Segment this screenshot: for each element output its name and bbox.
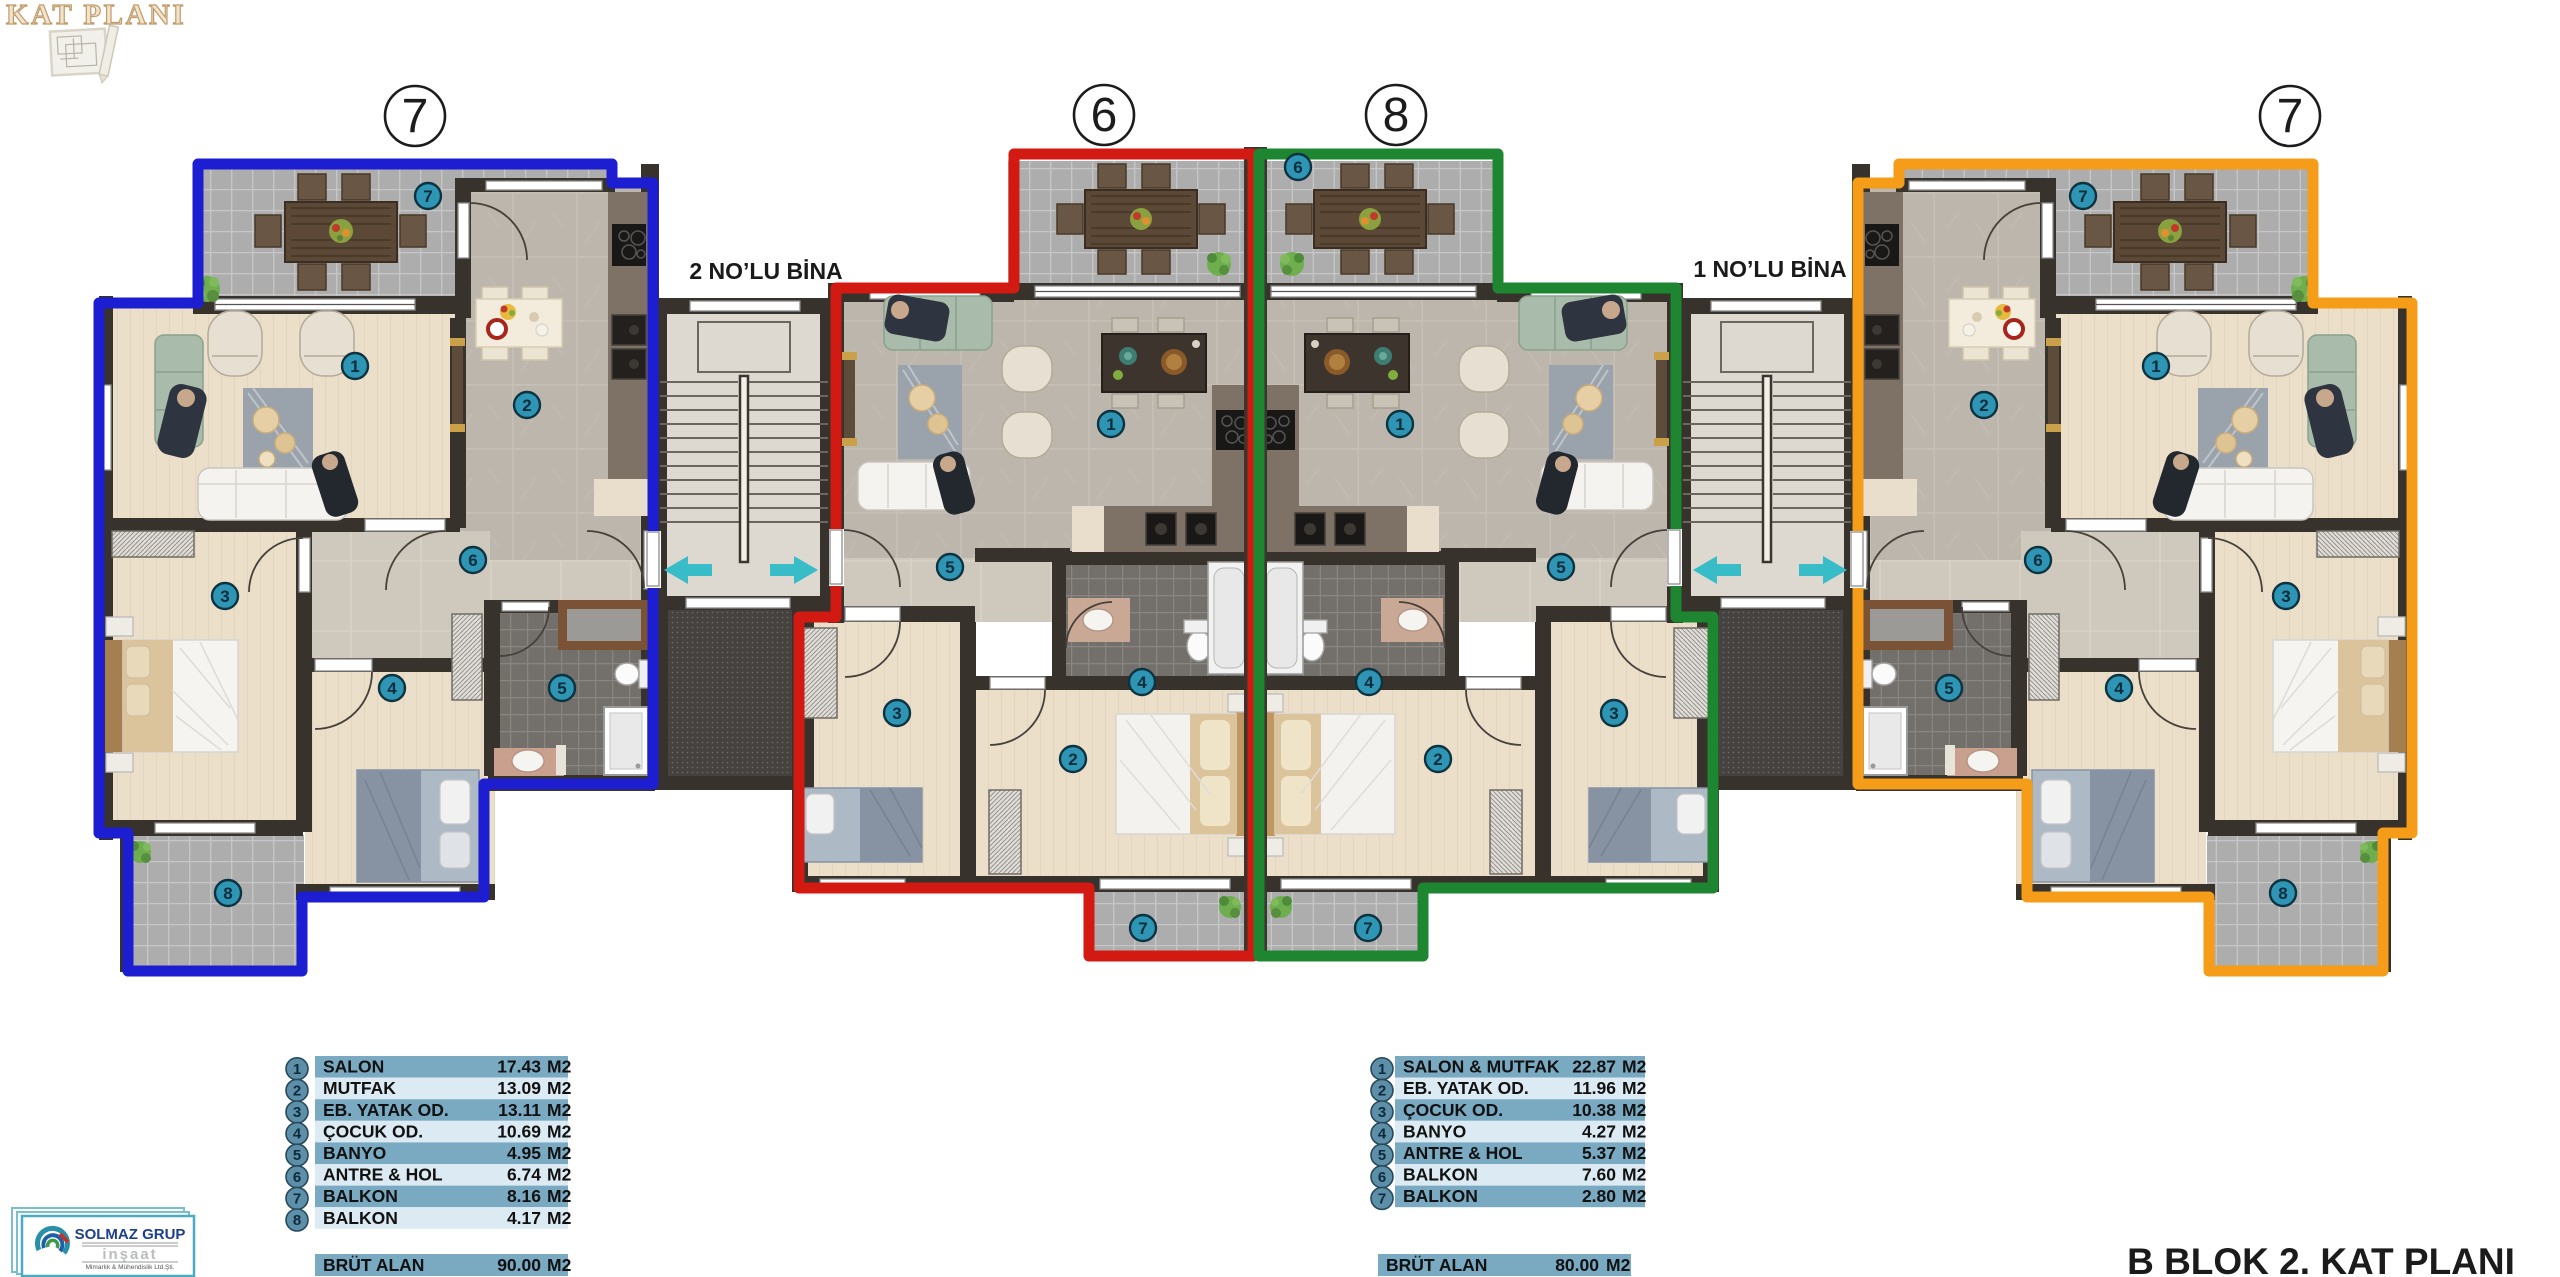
svg-text:7: 7 xyxy=(2277,90,2304,143)
svg-text:8: 8 xyxy=(1383,89,1410,142)
svg-text:5: 5 xyxy=(557,679,566,698)
svg-text:8.16: 8.16 xyxy=(507,1186,541,1206)
svg-text:3: 3 xyxy=(220,587,229,606)
svg-text:ÇOCUK OD.: ÇOCUK OD. xyxy=(323,1121,423,1141)
svg-text:inşaat: inşaat xyxy=(102,1246,157,1263)
svg-text:M2: M2 xyxy=(1622,1165,1647,1185)
svg-text:M2: M2 xyxy=(547,1057,572,1077)
svg-text:M2: M2 xyxy=(1622,1143,1647,1163)
svg-text:6: 6 xyxy=(468,551,477,570)
svg-text:BALKON: BALKON xyxy=(323,1208,398,1228)
svg-text:M2: M2 xyxy=(1622,1057,1647,1077)
svg-text:2: 2 xyxy=(1068,750,1077,769)
svg-text:M2: M2 xyxy=(1622,1121,1647,1141)
svg-text:M2: M2 xyxy=(547,1121,572,1141)
svg-text:Mimarlık & Mühendislik Ltd.Şti: Mimarlık & Mühendislik Ltd.Şti. xyxy=(86,1264,175,1271)
svg-text:ÇOCUK OD.: ÇOCUK OD. xyxy=(1403,1100,1503,1120)
svg-text:13.09: 13.09 xyxy=(497,1078,541,1098)
svg-text:5: 5 xyxy=(293,1147,301,1164)
svg-text:4: 4 xyxy=(1378,1126,1387,1143)
svg-text:7: 7 xyxy=(1378,1190,1386,1207)
svg-text:7: 7 xyxy=(2078,187,2087,206)
svg-text:BANYO: BANYO xyxy=(1403,1121,1466,1141)
svg-text:22.87: 22.87 xyxy=(1572,1057,1616,1077)
svg-text:1: 1 xyxy=(2151,357,2160,376)
svg-text:EB. YATAK OD.: EB. YATAK OD. xyxy=(323,1100,449,1120)
svg-text:M2: M2 xyxy=(547,1143,572,1163)
svg-text:6.74: 6.74 xyxy=(507,1165,541,1185)
svg-text:EB. YATAK OD.: EB. YATAK OD. xyxy=(1403,1078,1529,1098)
svg-text:B BLOK 2. KAT PLANI: B BLOK 2. KAT PLANI xyxy=(2127,1241,2515,1277)
svg-text:2 NO’LU BİNA: 2 NO’LU BİNA xyxy=(689,258,842,284)
svg-text:BRÜT ALAN: BRÜT ALAN xyxy=(1386,1255,1487,1275)
svg-text:6: 6 xyxy=(1293,158,1302,177)
svg-text:8: 8 xyxy=(2278,884,2287,903)
svg-text:M2: M2 xyxy=(547,1100,572,1120)
svg-text:4: 4 xyxy=(1137,673,1147,692)
svg-text:1: 1 xyxy=(350,357,359,376)
svg-text:ANTRE & HOL: ANTRE & HOL xyxy=(323,1165,443,1185)
svg-text:2: 2 xyxy=(522,396,531,415)
svg-text:1 NO’LU BİNA: 1 NO’LU BİNA xyxy=(1693,256,1846,282)
svg-text:1: 1 xyxy=(1395,415,1404,434)
svg-text:8: 8 xyxy=(293,1212,301,1229)
svg-text:10.69: 10.69 xyxy=(497,1121,541,1141)
svg-text:7: 7 xyxy=(1363,919,1372,938)
svg-text:SALON: SALON xyxy=(323,1057,384,1077)
svg-text:5: 5 xyxy=(945,558,954,577)
svg-text:17.43: 17.43 xyxy=(497,1057,541,1077)
svg-text:M2: M2 xyxy=(547,1078,572,1098)
svg-text:7: 7 xyxy=(402,90,429,143)
svg-text:1: 1 xyxy=(1378,1061,1386,1078)
svg-text:M2: M2 xyxy=(1606,1255,1631,1275)
svg-text:4.95: 4.95 xyxy=(507,1143,541,1163)
svg-text:6: 6 xyxy=(1091,89,1118,142)
svg-text:90.00: 90.00 xyxy=(497,1255,541,1275)
svg-text:7.60: 7.60 xyxy=(1582,1165,1616,1185)
svg-text:3: 3 xyxy=(892,704,901,723)
svg-text:4.27: 4.27 xyxy=(1582,1121,1616,1141)
svg-text:4: 4 xyxy=(1364,673,1374,692)
svg-text:BALKON: BALKON xyxy=(1403,1186,1478,1206)
svg-text:8: 8 xyxy=(223,884,232,903)
svg-text:6: 6 xyxy=(2033,551,2042,570)
svg-text:BRÜT ALAN: BRÜT ALAN xyxy=(323,1255,424,1275)
svg-text:7: 7 xyxy=(423,187,432,206)
svg-text:M2: M2 xyxy=(547,1165,572,1185)
svg-text:5: 5 xyxy=(1556,558,1565,577)
svg-text:M2: M2 xyxy=(1622,1186,1647,1206)
svg-text:6: 6 xyxy=(293,1169,301,1186)
svg-text:SOLMAZ GRUP: SOLMAZ GRUP xyxy=(75,1226,186,1243)
svg-text:5: 5 xyxy=(1378,1147,1386,1164)
svg-text:1: 1 xyxy=(293,1061,301,1078)
svg-text:3: 3 xyxy=(2281,587,2290,606)
svg-text:SALON & MUTFAK: SALON & MUTFAK xyxy=(1403,1057,1560,1077)
svg-text:M2: M2 xyxy=(1622,1100,1647,1120)
svg-text:M2: M2 xyxy=(547,1208,572,1228)
svg-text:2: 2 xyxy=(1378,1082,1386,1099)
svg-text:5.37: 5.37 xyxy=(1582,1143,1616,1163)
svg-text:5: 5 xyxy=(1944,679,1953,698)
svg-text:MUTFAK: MUTFAK xyxy=(323,1078,396,1098)
svg-text:3: 3 xyxy=(1609,704,1618,723)
svg-text:M2: M2 xyxy=(1622,1078,1647,1098)
svg-text:4.17: 4.17 xyxy=(507,1208,541,1228)
svg-text:13.11: 13.11 xyxy=(498,1100,541,1120)
svg-text:3: 3 xyxy=(1378,1104,1386,1121)
svg-text:2: 2 xyxy=(1433,750,1442,769)
svg-text:10.38: 10.38 xyxy=(1572,1100,1616,1120)
svg-text:3: 3 xyxy=(293,1104,301,1121)
svg-text:80.00: 80.00 xyxy=(1555,1255,1599,1275)
svg-text:4: 4 xyxy=(387,679,397,698)
svg-text:4: 4 xyxy=(293,1126,302,1143)
svg-text:2: 2 xyxy=(293,1082,301,1099)
svg-text:6: 6 xyxy=(1378,1169,1386,1186)
svg-text:BALKON: BALKON xyxy=(1403,1165,1478,1185)
svg-text:M2: M2 xyxy=(547,1255,572,1275)
svg-text:BANYO: BANYO xyxy=(323,1143,386,1163)
svg-text:11.96: 11.96 xyxy=(1573,1078,1616,1098)
svg-text:M2: M2 xyxy=(547,1186,572,1206)
svg-text:2: 2 xyxy=(1979,396,1988,415)
svg-text:ANTRE & HOL: ANTRE & HOL xyxy=(1403,1143,1523,1163)
svg-text:1: 1 xyxy=(1106,415,1115,434)
svg-text:7: 7 xyxy=(1138,919,1147,938)
svg-text:4: 4 xyxy=(2114,679,2124,698)
svg-text:BALKON: BALKON xyxy=(323,1186,398,1206)
svg-text:2.80: 2.80 xyxy=(1582,1186,1616,1206)
svg-text:7: 7 xyxy=(293,1190,301,1207)
svg-text:KAT PLANI: KAT PLANI xyxy=(6,0,186,31)
